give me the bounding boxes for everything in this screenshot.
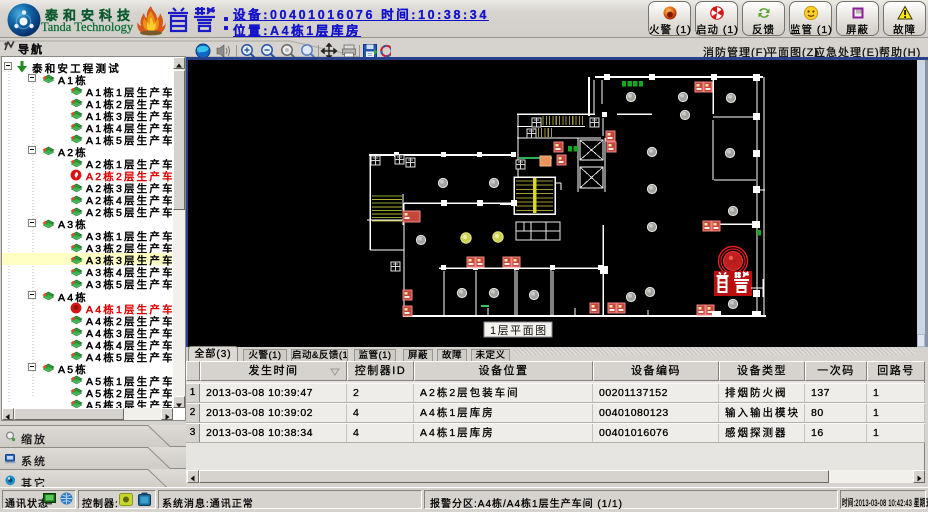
svg-text:1层平面图: 1层平面图 [490,324,548,337]
